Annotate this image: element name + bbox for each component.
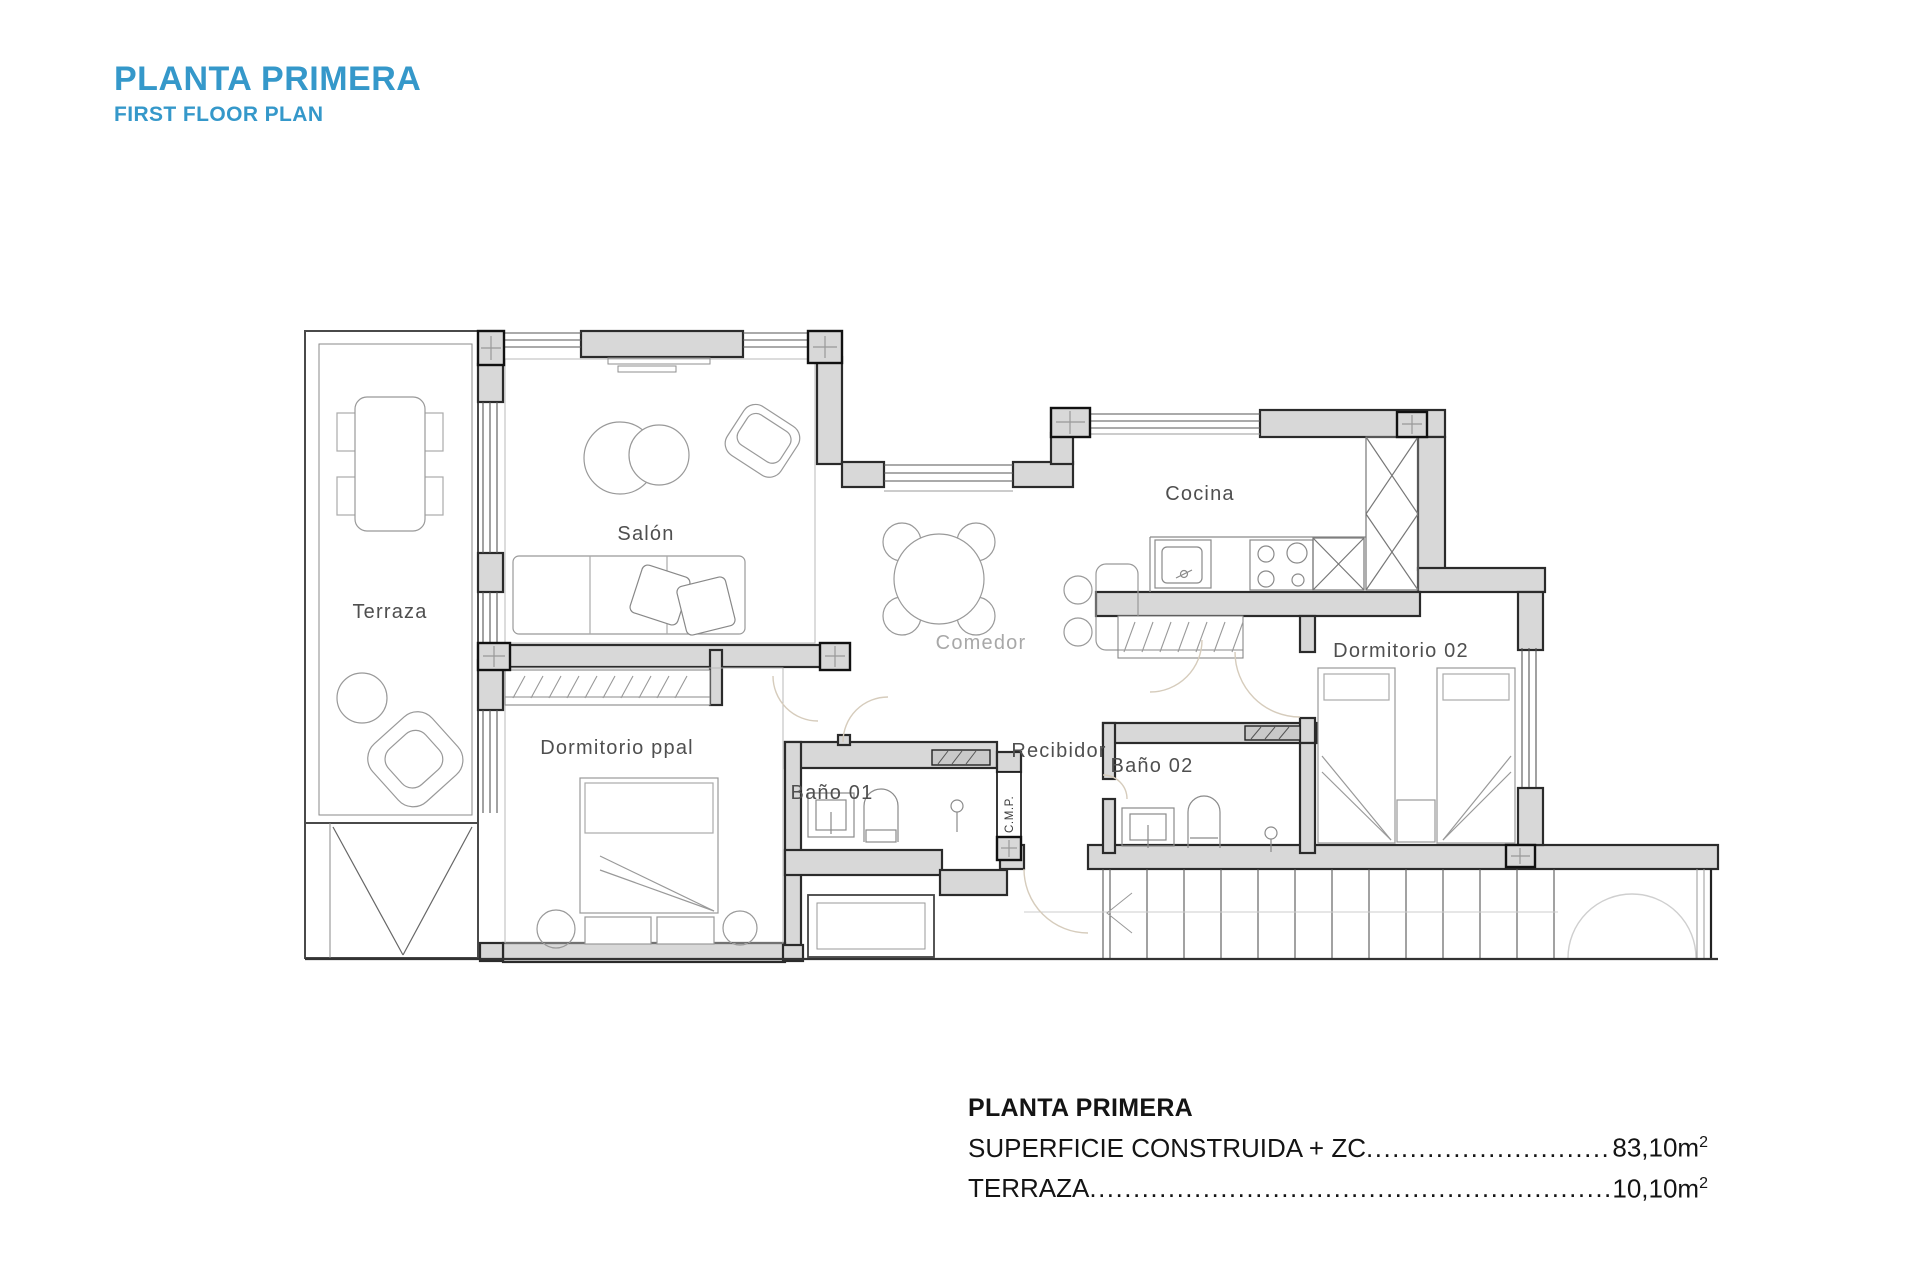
terrace-dining-table: [355, 397, 425, 531]
door-arc-entry: [1024, 869, 1088, 933]
dormppal-furniture: [537, 778, 757, 948]
salon-round-table-small: [629, 425, 689, 485]
wall-terraza-band-2: [478, 553, 503, 592]
room-label-salon: Salón: [617, 523, 674, 545]
room-label-dormppal: Dormitorio ppal: [540, 737, 694, 759]
room-label-dorm02: Dormitorio 02: [1333, 640, 1469, 662]
area-summary: PLANTA PRIMERA SUPERFICIE CONSTRUIDA + Z…: [968, 1092, 1708, 1206]
tall-cabinet: [1366, 437, 1418, 590]
stairs-steps: [1103, 869, 1554, 958]
summary-label: TERRAZA: [968, 1171, 1089, 1206]
bed-bench: [657, 917, 714, 944]
wall-niche-west: [842, 462, 884, 487]
bano02-fixtures: [1122, 796, 1277, 852]
door-arc-dorm02: [1235, 652, 1300, 717]
salon-armchair: [720, 399, 805, 482]
bathroom-sink: [1122, 808, 1174, 848]
wall-cocina-east: [1418, 437, 1445, 570]
terraza-lower-box: [305, 823, 478, 958]
column-dorm02-east: [1518, 788, 1543, 845]
kitchen-sink: [1155, 540, 1211, 588]
stove: [1250, 540, 1313, 590]
wall-wardrobe-stub: [710, 650, 722, 705]
window-bay: [808, 895, 934, 957]
page: PLANTA PRIMERA FIRST FLOOR PLAN: [0, 0, 1920, 1280]
shower-head: [951, 800, 963, 832]
dot-leader: ........................................…: [1089, 1171, 1612, 1206]
wall-bano01-bottom: [785, 850, 942, 875]
stairs: [1024, 869, 1711, 958]
salon-sofa: [513, 556, 745, 636]
door-arc-dormppal: [773, 676, 818, 721]
room-label-bano01: Baño 01: [791, 782, 874, 804]
cmp-label: C.M.P.: [1004, 796, 1016, 833]
terrace-lounge-chair: [360, 704, 472, 815]
wall-salon-dormppal: [503, 645, 822, 667]
double-bed: [580, 778, 718, 913]
terrace-side-table: [337, 673, 387, 723]
single-bed-1: [1318, 668, 1395, 843]
room-label-comedor: Comedor: [936, 632, 1027, 654]
wall-bano02-east: [1300, 743, 1315, 853]
bed-bench: [585, 917, 651, 944]
summary-label: SUPERFICIE CONSTRUIDA + ZC: [968, 1131, 1366, 1166]
room-label-recibidor: Recibidor: [1011, 740, 1106, 762]
wall-dorm02-east-upper: [1518, 592, 1543, 650]
room-label-terraza: Terraza: [352, 601, 427, 623]
vent-bano02: [1245, 726, 1300, 740]
wall-salon-top: [581, 331, 743, 357]
dining-table: [894, 534, 984, 624]
summary-row-terrace-area: TERRAZA.................................…: [968, 1166, 1708, 1207]
wall-dorm02-step: [1418, 568, 1545, 592]
stool: [723, 911, 757, 945]
room-label-cocina: Cocina: [1165, 483, 1234, 505]
comedor-furniture: [883, 523, 995, 635]
wall-cocina-dorm02-divider: [1096, 592, 1420, 616]
floor-plan-svg: C.M.P.: [0, 0, 1920, 1280]
wall-stairs-top: [1088, 845, 1718, 869]
summary-title: PLANTA PRIMERA: [968, 1092, 1708, 1125]
wall-recibidor-dorm02-upper: [1300, 616, 1315, 652]
cmp-shaft: C.M.P.: [997, 772, 1021, 837]
salon-furniture: [513, 399, 805, 636]
toilet: [1188, 796, 1220, 848]
summary-value: 83,10m2: [1612, 1125, 1708, 1166]
awning-v-line: [403, 827, 472, 955]
wall-bano02-west-lower: [1103, 799, 1115, 853]
wall-terraza-band-1: [478, 364, 503, 402]
awning-v-line: [333, 827, 403, 955]
tv-unit: [618, 366, 676, 372]
base-cabinet: [1313, 538, 1364, 590]
wall-niche-east: [1013, 462, 1073, 487]
wall-salon-east: [817, 357, 842, 464]
wardrobe-dorm02: [1118, 616, 1243, 658]
dot-leader: ........................................…: [1366, 1131, 1612, 1166]
dorm02-furniture: [1318, 668, 1515, 843]
summary-value: 10,10m2: [1612, 1166, 1708, 1207]
single-bed-2: [1437, 668, 1515, 843]
wall-bano01-bottom-step: [940, 870, 1007, 895]
stairs-arc: [1568, 894, 1696, 958]
nightstand: [1397, 800, 1435, 842]
summary-row-built-area: SUPERFICIE CONSTRUIDA + ZC..............…: [968, 1125, 1708, 1166]
stairs-direction-chevron: [1107, 893, 1132, 933]
wall-recibidor-dorm02-lower: [1300, 718, 1315, 743]
room-label-bano02: Baño 02: [1111, 755, 1194, 777]
wardrobe-dormppal: [505, 670, 710, 705]
